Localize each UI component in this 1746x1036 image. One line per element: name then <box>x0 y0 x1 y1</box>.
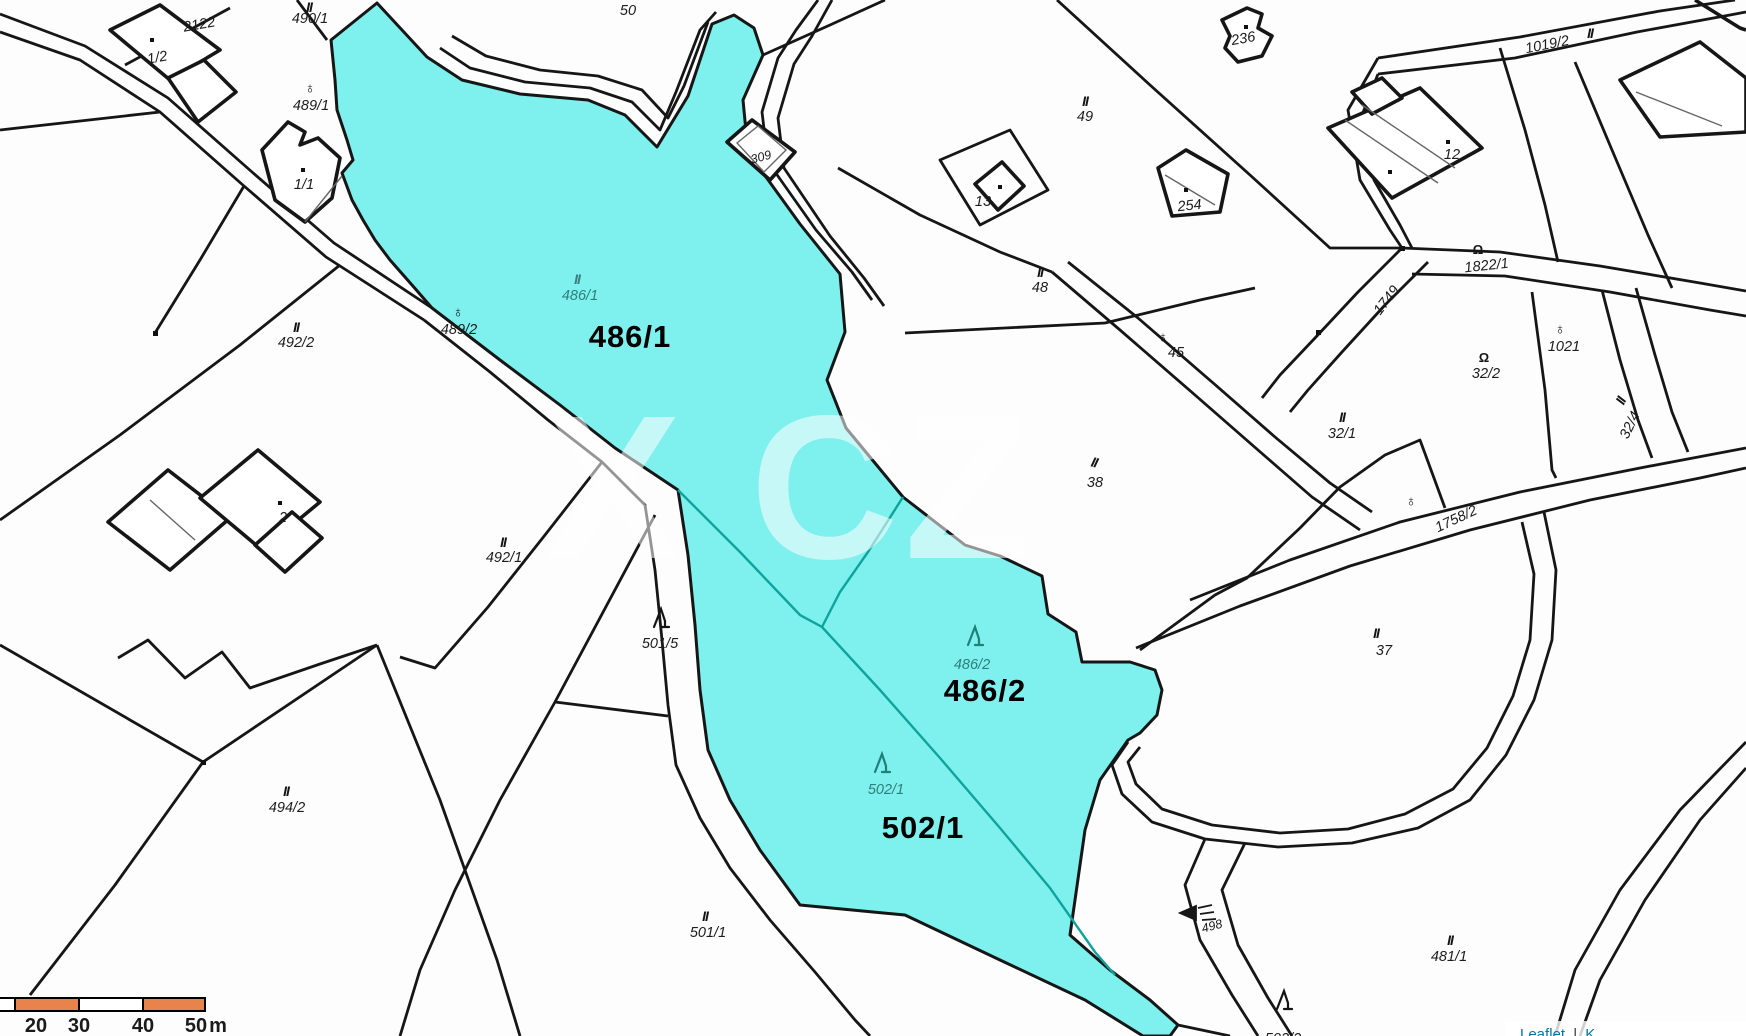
scale-bar: 20 30 40 50 m <box>0 998 227 1036</box>
landuse-ii-icon: II <box>1037 264 1045 280</box>
parcel-label: 489/2 <box>441 322 477 338</box>
orchard-symbol-icon: Ω <box>1479 350 1489 365</box>
map-viewport[interactable]: X CZ II II II II II II II II II II II II… <box>0 0 1746 1036</box>
cadastral-map-canvas[interactable]: X CZ II II II II II II II II II II II II… <box>0 0 1746 1036</box>
attribution-leaflet-link[interactable]: Leaflet <box>1520 1026 1566 1036</box>
parcel-label: 1822/1 <box>1464 256 1510 277</box>
attribution-source-link[interactable]: K <box>1585 1026 1595 1036</box>
scale-label-40: 40 <box>132 1015 154 1036</box>
garden-symbol-icon: ♁ <box>1554 321 1565 338</box>
landuse-ii-icon: II <box>293 319 301 335</box>
garden-symbol-icon: ♁ <box>1405 493 1416 510</box>
parcel-label: 486/2 <box>954 657 990 673</box>
highlighted-label-502-1: 502/1 <box>882 810 965 845</box>
attribution-bar: Leaflet | K <box>1505 1021 1746 1036</box>
scale-label-30: 30 <box>68 1015 90 1036</box>
parcel-label: 501/1 <box>690 925 726 941</box>
parcel-label: 2 <box>278 510 287 526</box>
garden-symbol-icon: ♁ <box>1157 329 1168 346</box>
parcel-label: 492/1 <box>486 550 522 566</box>
garden-symbol-icon: ♁ <box>304 80 315 97</box>
landuse-ii-icon: II <box>1082 93 1090 109</box>
parcel-label: 486/1 <box>562 288 598 304</box>
attribution-separator: | <box>1573 1026 1577 1036</box>
scale-unit-label: m <box>209 1015 227 1036</box>
landuse-ii-icon: II <box>283 783 291 799</box>
landuse-ii-icon: II <box>1447 932 1455 948</box>
parcel-label: 32/1 <box>1328 426 1356 442</box>
landuse-ii-icon: II <box>702 908 710 924</box>
parcel-label: 12 <box>1444 147 1460 163</box>
parcel-label: 38 <box>1087 475 1103 491</box>
slope-arrow-icon <box>1180 905 1216 920</box>
parcel-label: 32/2 <box>1472 366 1500 382</box>
scale-label-50: 50 <box>185 1015 207 1036</box>
parcel-label: 502/1 <box>868 782 904 798</box>
parcel-label: 1/1 <box>294 177 314 193</box>
parcel-label: 48 <box>1032 280 1048 296</box>
parcel-label: 49 <box>1077 109 1093 125</box>
landuse-ii-icon: II <box>1339 409 1347 425</box>
garden-symbol-icon: ♁ <box>452 304 463 321</box>
parcel-label: 45 <box>1168 345 1185 361</box>
landuse-ii-icon: II <box>1587 25 1595 41</box>
parcel-label: 13 <box>975 194 991 210</box>
parcel-label: 2122 <box>181 14 217 36</box>
parcel-label: 501/5 <box>642 636 679 652</box>
parcel-label: 489/1 <box>293 98 329 114</box>
watermark-text: X CZ <box>545 373 1036 602</box>
parcel-label: 254 <box>1176 197 1203 216</box>
parcel-label: 492/2 <box>278 335 314 351</box>
parcel-label: 37 <box>1376 643 1393 659</box>
parcel-label: 1021 <box>1548 339 1580 355</box>
highlighted-label-486-2: 486/2 <box>944 673 1027 708</box>
landuse-ii-icon: II <box>1089 454 1101 471</box>
parcel-label: 502/2 <box>1265 1031 1301 1036</box>
highlighted-label-486-1: 486/1 <box>589 319 672 354</box>
landuse-ii-icon: II <box>500 534 508 550</box>
scale-label-20: 20 <box>25 1015 47 1036</box>
landuse-ii-icon: II <box>1373 625 1381 641</box>
parcel-label: 50 <box>620 3 636 19</box>
parcel-label: 481/1 <box>1431 949 1467 965</box>
parcel-label: 1749 <box>1371 283 1403 318</box>
orchard-symbol-icon: Ω <box>1473 242 1483 257</box>
parcel-label: 1019/2 <box>1524 33 1571 57</box>
landuse-ii-icon: II <box>1612 393 1630 407</box>
parcel-label: 490/1 <box>292 11 328 27</box>
parcel-label: 494/2 <box>269 800 305 816</box>
